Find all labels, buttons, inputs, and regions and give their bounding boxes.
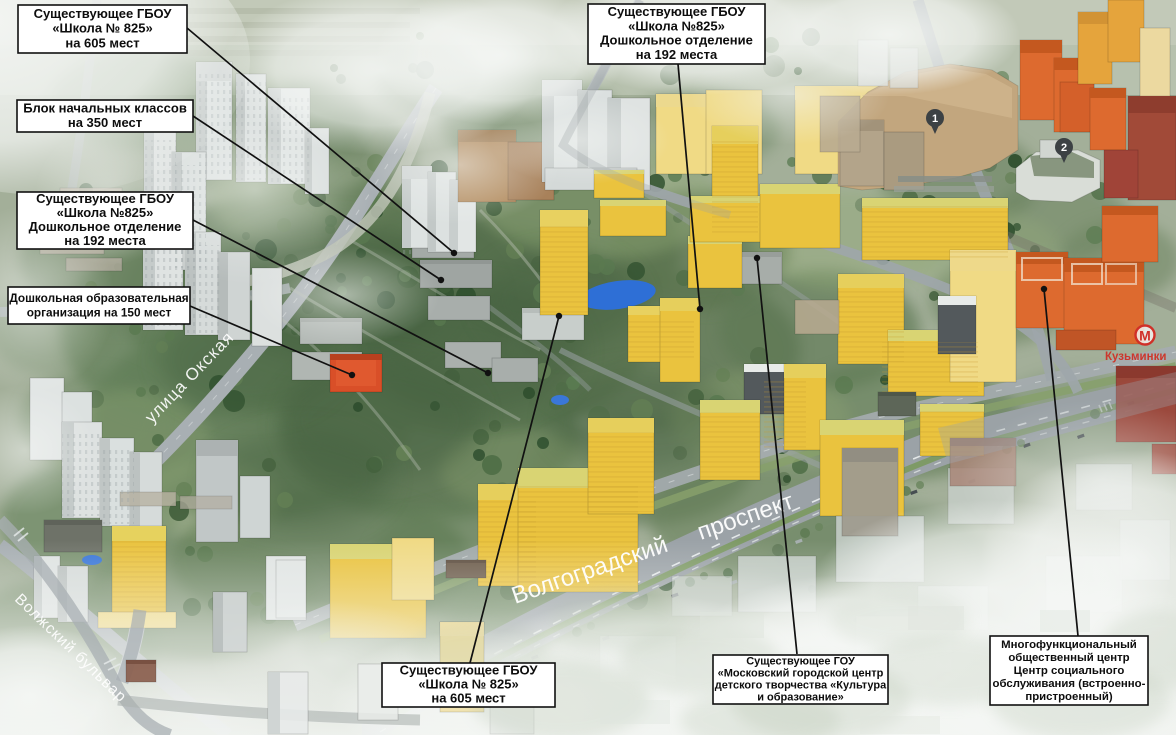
svg-text:М: М [1139, 328, 1151, 344]
svg-text:Существующее ГБОУ: Существующее ГБОУ [36, 191, 175, 206]
svg-text:Блок начальных классов: Блок начальных классов [23, 100, 187, 115]
svg-text:Дошкольное отделение: Дошкольное отделение [29, 219, 182, 234]
svg-text:детского творчества «Культура: детского творчества «Культура [715, 680, 887, 692]
svg-text:пристроенный): пристроенный) [1025, 691, 1112, 703]
svg-text:«Школа №825»: «Школа №825» [57, 205, 154, 220]
svg-text:Дошкольная образовательная: Дошкольная образовательная [9, 291, 188, 305]
svg-text:общественный центр: общественный центр [1008, 652, 1129, 664]
svg-text:«Школа № 825»: «Школа № 825» [52, 21, 152, 36]
svg-text:организация на 150 мест: организация на 150 мест [27, 306, 172, 320]
svg-text:Существующее ГБОУ: Существующее ГБОУ [400, 663, 539, 678]
svg-text:«Школа № 825»: «Школа № 825» [418, 677, 518, 692]
svg-text:на 605 мест: на 605 мест [431, 691, 505, 706]
svg-text:на 350 мест: на 350 мест [68, 115, 142, 130]
svg-text:Многофункциональный: Многофункциональный [1001, 639, 1137, 651]
svg-text:и образование»: и образование» [757, 692, 844, 704]
svg-text:2: 2 [1061, 142, 1067, 154]
svg-text:«Школа №825»: «Школа №825» [628, 18, 725, 33]
svg-text:Существующее ГБОУ: Существующее ГБОУ [608, 4, 747, 19]
svg-text:Центр социального: Центр социального [1014, 665, 1125, 677]
svg-text:на 605 мест: на 605 мест [65, 36, 139, 51]
svg-text:обслуживания (встроенно-: обслуживания (встроенно- [993, 678, 1146, 690]
svg-text:Существующее ГБОУ: Существующее ГБОУ [34, 6, 173, 21]
svg-text:«Московский городской центр: «Московский городской центр [718, 668, 884, 680]
svg-text:1: 1 [932, 113, 938, 125]
svg-text:Существующее ГОУ: Существующее ГОУ [746, 655, 855, 667]
svg-text:Кузьминки: Кузьминки [1105, 351, 1166, 363]
svg-text:на 192 места: на 192 места [636, 47, 718, 62]
svg-text:Дошкольное отделение: Дошкольное отделение [600, 33, 753, 48]
svg-text:на 192 места: на 192 места [64, 233, 146, 248]
